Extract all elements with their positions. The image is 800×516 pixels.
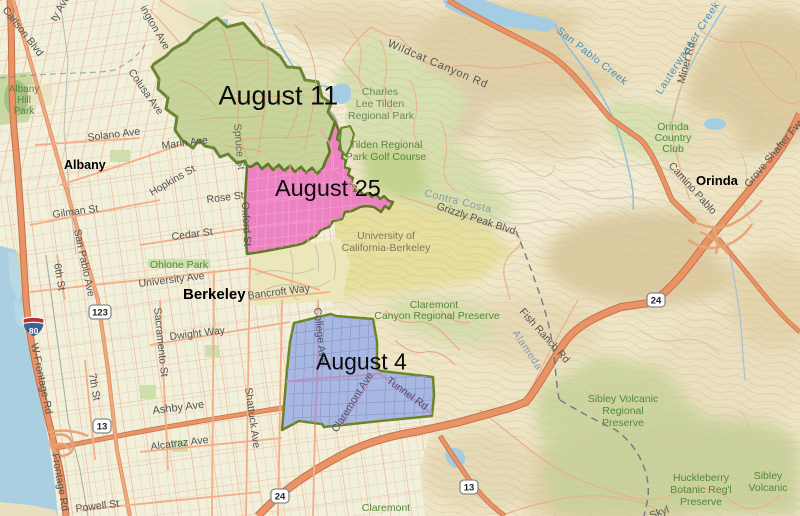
svg-text:Ohlone Park: Ohlone Park — [150, 259, 209, 271]
svg-text:24: 24 — [275, 492, 286, 503]
svg-text:Preserve: Preserve — [680, 496, 722, 508]
svg-text:Oxford St: Oxford St — [239, 202, 253, 247]
svg-text:Canyon Regional Preserve: Canyon Regional Preserve — [374, 310, 500, 322]
svg-text:Park Golf Course: Park Golf Course — [346, 151, 427, 163]
svg-text:24: 24 — [651, 296, 662, 307]
svg-text:Volcanic: Volcanic — [748, 482, 787, 494]
svg-text:August 25: August 25 — [275, 175, 381, 201]
svg-text:Orinda: Orinda — [696, 173, 739, 188]
svg-text:Berkeley: Berkeley — [183, 286, 246, 303]
svg-text:Huckleberry: Huckleberry — [673, 472, 730, 484]
svg-text:Regional: Regional — [602, 405, 643, 417]
svg-text:Sibley: Sibley — [754, 470, 783, 482]
svg-text:Lee Tilden: Lee Tilden — [356, 98, 405, 110]
svg-text:Botanic Reg'l: Botanic Reg'l — [670, 484, 732, 496]
svg-text:123: 123 — [92, 308, 108, 319]
svg-text:Club: Club — [662, 143, 684, 155]
svg-text:Tilden Regional: Tilden Regional — [350, 139, 423, 151]
svg-text:Charles: Charles — [362, 86, 398, 98]
svg-text:80: 80 — [29, 326, 39, 336]
svg-text:Hill: Hill — [17, 95, 31, 106]
svg-text:August 4: August 4 — [316, 349, 407, 375]
svg-text:Claremont: Claremont — [362, 502, 411, 514]
svg-text:Regional Park: Regional Park — [348, 110, 415, 122]
svg-text:Park: Park — [14, 106, 36, 117]
svg-text:13: 13 — [97, 422, 108, 433]
svg-text:Albany: Albany — [9, 84, 40, 95]
svg-text:University of: University of — [357, 230, 415, 242]
svg-text:California-Berkeley: California-Berkeley — [342, 242, 431, 254]
svg-text:Albany: Albany — [64, 158, 106, 172]
svg-text:August 11: August 11 — [219, 80, 339, 110]
svg-text:Preserve: Preserve — [602, 417, 644, 429]
svg-text:Sibley Volcanic: Sibley Volcanic — [588, 393, 659, 405]
svg-text:13: 13 — [464, 483, 475, 494]
